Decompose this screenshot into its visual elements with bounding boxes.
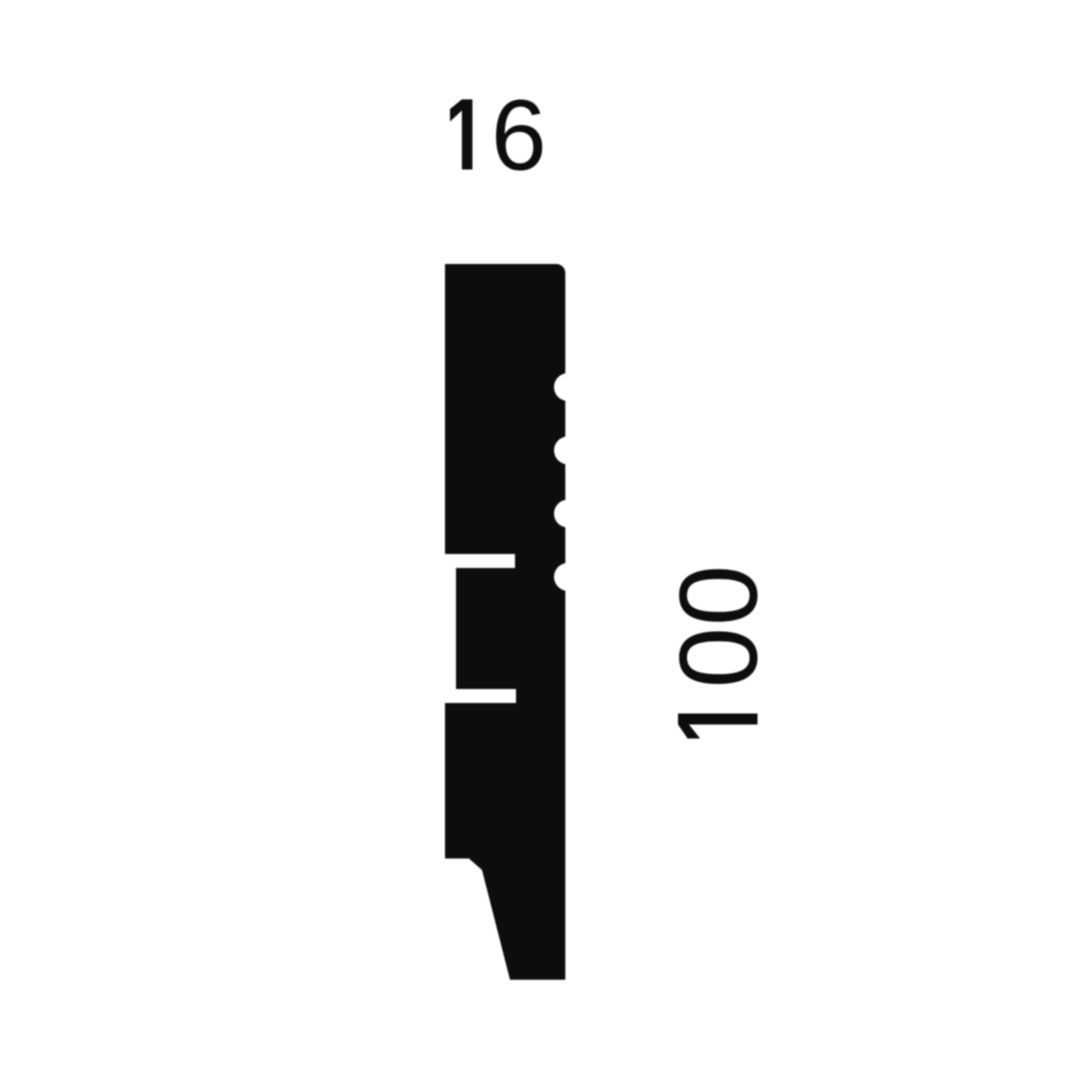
svg-text:6: 6 [491, 80, 547, 192]
svg-text:00: 00 [658, 564, 781, 689]
